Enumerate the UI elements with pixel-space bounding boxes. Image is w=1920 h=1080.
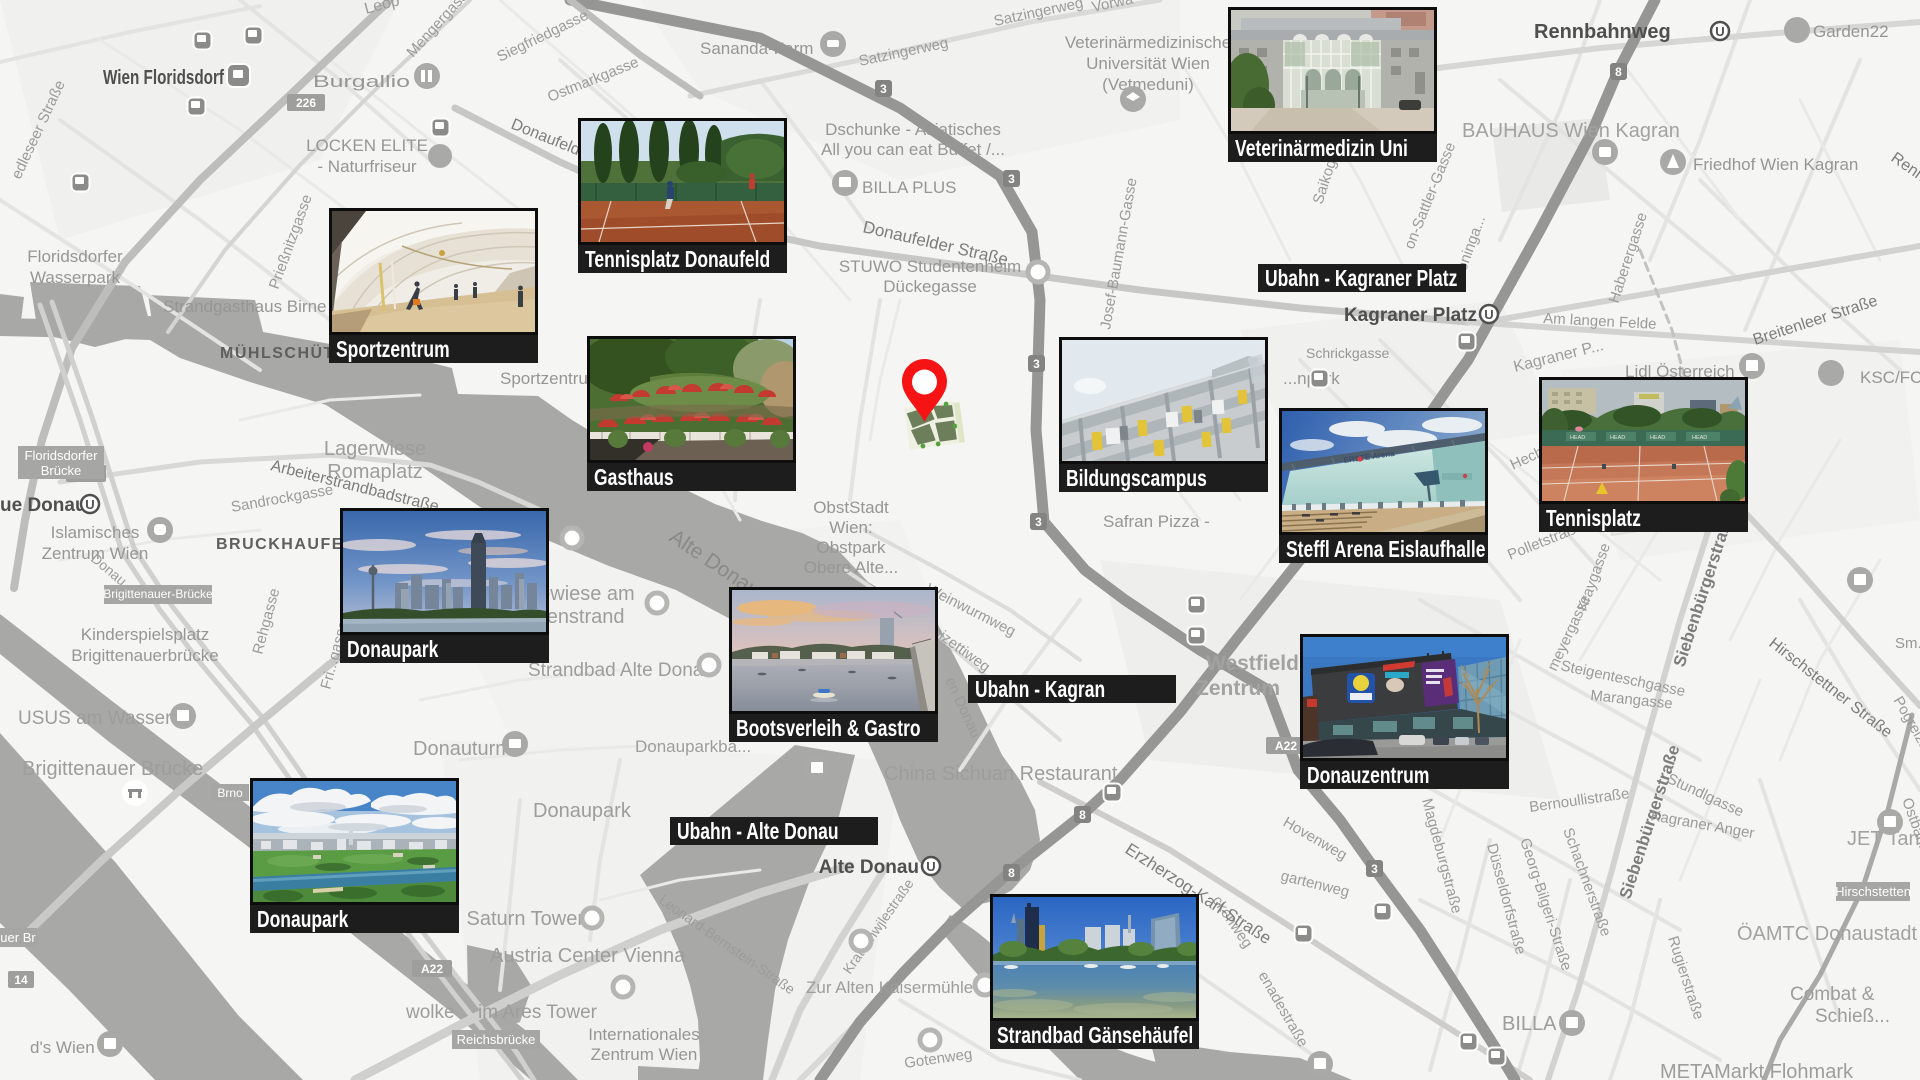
svg-text:ObstStadt: ObstStadt bbox=[813, 498, 889, 517]
svg-text:Brigittenauer Brücke: Brigittenauer Brücke bbox=[22, 758, 203, 780]
svg-text:MÜHLSCHÜT: MÜHLSCHÜT bbox=[220, 343, 335, 362]
svg-text:HEAD: HEAD bbox=[1650, 435, 1665, 441]
svg-text:14: 14 bbox=[14, 973, 28, 987]
svg-text:Wasserpark: Wasserpark bbox=[30, 268, 121, 287]
svg-text:Combat &: Combat & bbox=[1790, 984, 1875, 1005]
svg-text:Islamisches: Islamisches bbox=[51, 523, 140, 542]
svg-text:Strandbad Alte Donau: Strandbad Alte Donau bbox=[528, 660, 714, 681]
svg-text:Veterinärmedizinische: Veterinärmedizinische bbox=[1065, 33, 1231, 52]
svg-text:HEAD: HEAD bbox=[1692, 435, 1707, 441]
svg-text:METAMarkt Flohmark: METAMarkt Flohmark bbox=[1660, 1061, 1854, 1080]
svg-text:LOCKEN ELITE: LOCKEN ELITE bbox=[306, 136, 428, 155]
svg-text:All you can eat Buffet /...: All you can eat Buffet /... bbox=[821, 140, 1005, 159]
svg-text:8: 8 bbox=[1008, 866, 1015, 880]
svg-text:Donauturm: Donauturm bbox=[413, 738, 512, 760]
svg-text:ue Donau: ue Donau bbox=[0, 495, 87, 516]
svg-text:BILLA: BILLA bbox=[1502, 1013, 1557, 1035]
svg-text:3: 3 bbox=[1008, 172, 1015, 186]
svg-text:Brno: Brno bbox=[217, 786, 243, 800]
svg-text:wolke: wolke bbox=[405, 1002, 455, 1023]
svg-text:Austria Center Vienna: Austria Center Vienna bbox=[490, 945, 686, 967]
svg-text:BRUCKHAUFEN: BRUCKHAUFEN bbox=[216, 536, 357, 553]
svg-text:d's Wien: d's Wien bbox=[30, 1038, 95, 1057]
svg-text:8: 8 bbox=[1079, 808, 1086, 822]
svg-text:- Naturfriseur: - Naturfriseur bbox=[317, 157, 417, 176]
svg-text:ÖAMTC Donaustadt: ÖAMTC Donaustadt bbox=[1737, 923, 1918, 945]
svg-text:Garden22: Garden22 bbox=[1813, 22, 1889, 41]
svg-text:Schieß...: Schieß... bbox=[1815, 1006, 1890, 1027]
svg-text:Westfield: Westfield bbox=[1206, 652, 1299, 675]
svg-text:Friedhof Wien Kagran: Friedhof Wien Kagran bbox=[1693, 155, 1858, 174]
svg-text:Strandgasthaus Birne: Strandgasthaus Birne bbox=[163, 297, 327, 316]
svg-text:Internationales: Internationales bbox=[588, 1025, 700, 1044]
svg-text:Zentrum Wien: Zentrum Wien bbox=[591, 1045, 698, 1064]
svg-text:A22: A22 bbox=[1275, 739, 1297, 753]
svg-text:Kinderspielsplatz: Kinderspielsplatz bbox=[81, 625, 210, 644]
svg-text:Brigittenauerbrücke: Brigittenauerbrücke bbox=[71, 646, 218, 665]
svg-text:226: 226 bbox=[296, 96, 316, 110]
svg-text:Obere Alte...: Obere Alte... bbox=[804, 558, 899, 577]
svg-text:Brigittenauer-Brücke: Brigittenauer-Brücke bbox=[103, 587, 213, 601]
svg-text:Schrickgasse: Schrickgasse bbox=[1306, 345, 1389, 361]
svg-text:(Vetmeduni): (Vetmeduni) bbox=[1102, 75, 1194, 94]
svg-text:Burgallio: Burgallio bbox=[313, 72, 410, 91]
svg-text:Saturn Tower: Saturn Tower bbox=[467, 908, 585, 930]
svg-text:HEAD: HEAD bbox=[1570, 435, 1585, 441]
svg-text:Floridsdorfer: Floridsdorfer bbox=[25, 448, 99, 463]
svg-text:Universität Wien: Universität Wien bbox=[1086, 54, 1210, 73]
svg-text:Obstpark: Obstpark bbox=[817, 538, 886, 557]
svg-text:A22: A22 bbox=[421, 962, 443, 976]
svg-text:Floridsdorfer: Floridsdorfer bbox=[27, 247, 123, 266]
svg-text:BILLA PLUS: BILLA PLUS bbox=[862, 178, 957, 197]
svg-text:Zentrum: Zentrum bbox=[1196, 677, 1280, 700]
svg-text:Sm...: Sm... bbox=[1895, 635, 1920, 652]
svg-text:Wien:: Wien: bbox=[829, 518, 872, 537]
svg-text:Dschunke - Asiatisches: Dschunke - Asiatisches bbox=[825, 120, 1001, 139]
svg-text:China Sichuan Restaurant: China Sichuan Restaurant bbox=[884, 763, 1118, 785]
svg-text:USUS am Wasser: USUS am Wasser bbox=[18, 708, 172, 729]
svg-text:Reichsbrücke: Reichsbrücke bbox=[457, 1032, 536, 1047]
svg-text:Lagerwiese: Lagerwiese bbox=[324, 438, 426, 460]
svg-text:3: 3 bbox=[880, 82, 887, 96]
svg-text:im Ares Tower: im Ares Tower bbox=[478, 1002, 598, 1023]
svg-text:Dückegasse: Dückegasse bbox=[883, 277, 977, 296]
svg-text:Zur Alten Kaisermühle: Zur Alten Kaisermühle bbox=[806, 978, 973, 997]
svg-text:Safran Pizza -: Safran Pizza - bbox=[1103, 512, 1210, 531]
svg-text:3: 3 bbox=[1035, 515, 1042, 529]
svg-text:uer Br: uer Br bbox=[0, 930, 36, 945]
svg-text:Alte Donau: Alte Donau bbox=[819, 857, 919, 878]
svg-text:Wien Floridsdorf: Wien Floridsdorf bbox=[103, 67, 224, 89]
svg-text:U: U bbox=[926, 859, 935, 874]
svg-text:U: U bbox=[1484, 307, 1493, 322]
svg-text:KSC/FC...: KSC/FC... bbox=[1860, 368, 1920, 387]
svg-text:U: U bbox=[85, 497, 94, 512]
svg-text:Donaupark: Donaupark bbox=[533, 800, 632, 822]
svg-text:3: 3 bbox=[1033, 357, 1040, 371]
svg-text:Sananda-Farm: Sananda-Farm bbox=[700, 39, 813, 58]
svg-text:Kagraner Platz: Kagraner Platz bbox=[1344, 305, 1477, 326]
svg-text:Hirschstetten: Hirschstetten bbox=[1835, 884, 1911, 899]
svg-text:8: 8 bbox=[1615, 65, 1622, 79]
svg-text:3: 3 bbox=[1371, 862, 1378, 876]
svg-text:Rennbahnweg: Rennbahnweg bbox=[1534, 21, 1671, 43]
svg-text:U: U bbox=[1715, 24, 1724, 39]
svg-text:HEAD: HEAD bbox=[1610, 435, 1625, 441]
svg-text:Brücke: Brücke bbox=[41, 463, 81, 478]
svg-text:BAUHAUS Wien Kagran: BAUHAUS Wien Kagran bbox=[1462, 120, 1680, 142]
